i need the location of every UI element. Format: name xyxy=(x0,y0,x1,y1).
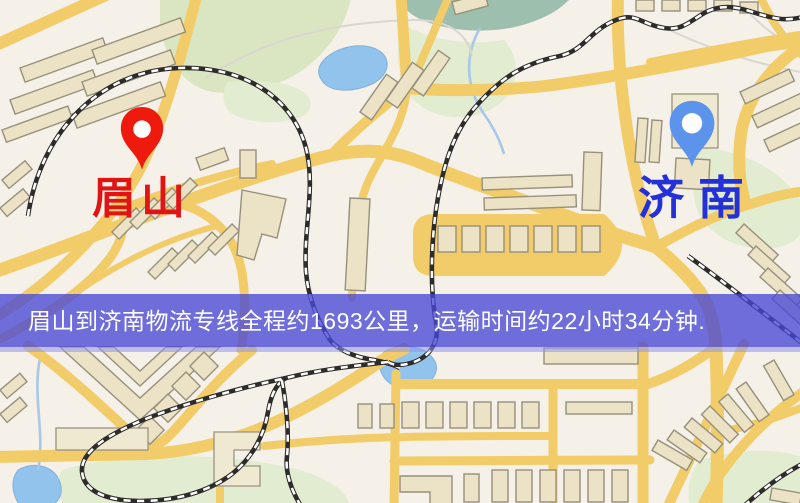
map-background xyxy=(0,0,800,503)
pin-icon xyxy=(667,97,717,167)
buildings-layer xyxy=(0,0,800,503)
destination-marker[interactable] xyxy=(667,97,717,167)
pin-hole xyxy=(682,113,702,133)
pin-body xyxy=(670,101,715,167)
route-info-text: 眉山到济南物流专线全程约1693公里，运输时间约22小时34分钟. xyxy=(28,294,705,347)
pin-hole xyxy=(133,120,150,137)
origin-marker[interactable] xyxy=(119,103,165,170)
origin-label: 眉山 xyxy=(92,177,190,221)
destination-label: 济南 xyxy=(638,175,758,221)
route-info-banner: 眉山到济南物流专线全程约1693公里，运输时间约22小时34分钟. xyxy=(0,294,800,347)
pin-body xyxy=(121,107,163,170)
pin-icon xyxy=(119,103,165,170)
map-screenshot: 眉山 济南 眉山到济南物流专线全程约1693公里，运输时间约22小时34分钟. xyxy=(0,0,800,503)
